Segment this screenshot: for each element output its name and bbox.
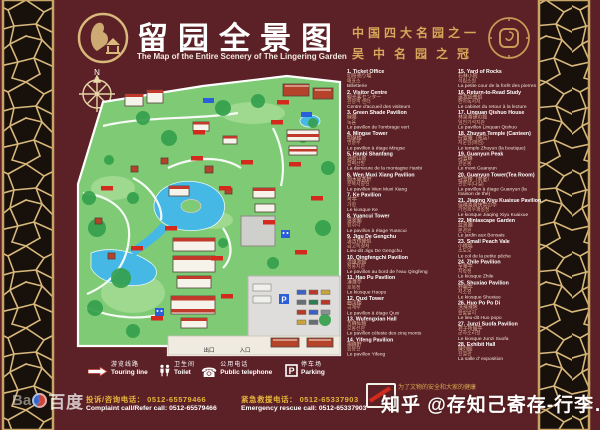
garden-map-sign: 留园全景图 The Map of the Entire Scenery of T… [0,0,600,430]
legend-entry-name-fr: Le kiosque Jiaqing Xiyu Kuaixue [458,213,544,218]
legend-entry: 9.Jigu De Gengchu汲古得綆処급고득경처Lieu-dit Jigu… [347,234,457,254]
legend-entry: 10.Qingfengchi Pavilion清風池館청풍지관Le pavill… [347,255,457,275]
legend-entry: 7.Ke Pavilion可亭가정Le kiosque Ke [347,193,457,213]
legend-entry-name-fr: Le col de la petite pêche [458,254,544,259]
legend-entry: 23.Small Peach Vale小桃塢소도오Le col de la pe… [458,239,544,259]
map-parking-mark: P [281,296,287,305]
legend-entry-name-fr: Le kiosque Haopu [347,290,457,295]
legend-entry: 27.Junzi Suofa Pavilion君子所履亭군자소리정Le kios… [458,321,544,341]
legend-entry-name-fr: Le cabinet du retour à la lecture [458,105,544,110]
map-pond-island [181,200,201,213]
baidu-paw-icon [32,393,47,408]
garden-map: N [73,68,345,368]
legend-entry-name-fr: Billetterie [347,84,457,89]
legend-entry-name-fr: Lieu-dit Jigu De Gengchu [347,249,457,254]
legend-entry: 2.Visitor Centre観光客センター관광객 센터Centre d'ac… [347,90,457,110]
legend-entry: 15.Yard of Rocks石林小院석림소원La petite cour d… [458,69,544,89]
facility-label-cn: 卫生间 [174,362,195,369]
legend-entry-name-fr: La demeure de la montagne Hanbi [347,167,457,172]
facility-touring-line: 游览线路Touring line [88,362,148,382]
facility-label-en: Toilet [174,369,195,377]
svg-text:P: P [289,366,295,376]
legend-entry-name-fr: La petite cour de la forêt des pierres [458,84,544,89]
legend-entry: 25.Shuxiao Pavilion舒嘯亭서소정Le kiosque Shux… [458,280,544,300]
compass-label: N [94,68,100,77]
legend-entry: 11.Hao Pu Pavilion濠濮亭호복정Le kiosque Haopu [347,275,457,295]
legend-entry: 5.Hanbi Shanfang涵碧山房함벽산방La demeure de la… [347,152,457,172]
legend-entry-name-en: Miniascape Garden [467,218,515,223]
legend-entry-name-fr: Le temple Zhuyun (la boutique) [458,146,544,151]
legend-entry: 6.Wen Muxi Xiang Pavilion聞木犀香軒문목서향헌Le pa… [347,172,457,192]
complaint-hotline-cn: 投诉/咨询电话： 0512-65579466 [86,395,217,404]
legend-entry-name-fr: Le mont Guanyun [458,167,544,172]
legend-entry: 12.Quxi Tower曲渓楼곡계루Le pavillon à étage Q… [347,296,457,316]
parking-icon: P [285,364,298,382]
honor-line-2: 吴中名园之冠 [352,45,480,62]
legend-column-1: 1.Ticket Office切符売り場매표소Billetterie2.Visi… [347,69,457,358]
legend-entry-name-fr: Le pavillon à étage Yuancui [347,228,457,233]
legend-entry: 19.Guanyun Peak冠雲峰관운봉Le mont Guanyun [458,152,544,172]
legend-entry: 24.Zhile Pavilion至楽亭지락정Le kiosque Zhile [458,260,544,280]
emergency-hotline: 紧急救援电话： 0512-65337903 Emergency rescue c… [241,395,366,413]
legend-entry: 1.Ticket Office切符売り場매표소Billetterie [347,69,457,89]
legend-entry-name-fr: Le pavillon à étage Quxi [347,311,457,316]
facility-label-en: Public telephone [220,369,272,377]
legend-entry-name-fr: Le pavillon au bord de l'eau Qingfeng [347,270,457,275]
legend-entry-name-fr: Le jardin aux Bonsais [458,233,544,238]
telephone-icon: ☎ [201,364,217,382]
legend-entry: 13.Wufengxian Hall五峰仙館오봉선관Le pavillon cé… [347,317,457,337]
honor-text: 中国四大名园之一 吴中名园之冠 [352,24,480,62]
legend-entry-name-fr: Le kiosque Shuxiao [458,295,544,300]
page-subtitle: The Map of the Entire Scenery of The Lin… [137,52,347,61]
legend-entry: 14.Yifeng Pavilion揖峰軒읍봉헌Le pavillon Yife… [347,337,457,357]
facility-parking: P停车场Parking [285,362,325,382]
legend-entry-name-fr: Le pavillon Yifeng [347,352,457,357]
honor-line-1: 中国四大名园之一 [352,24,480,41]
legend-entry-name-en: Shuxiao Pavilion [467,280,509,285]
legend-entry-name-fr: Le pavillon à étage Guanyun (la maison d… [458,187,544,197]
legend-entry: 18.Zhuyun Temple (Canteen)佇雲庵（売店）저운암(매점)… [458,131,544,151]
touring-line-icon [88,364,108,382]
garden-logo-icon [76,11,130,65]
legend-entry: 3.Green Shade Pavilion緑蔭녹음Le pavillon de… [347,110,457,130]
legend-column-2: 15.Yard of Rocks石林小院석림소원La petite cour d… [458,69,544,363]
emergency-hotline-en: Emergency rescue call: 0512-65337903 [241,404,366,413]
facility-label-cn: 游览线路 [111,362,148,369]
baidu-watermark: Ba 百度 [12,388,84,413]
map-entrance-label: 入口 [239,347,250,354]
facility-telephone: ☎公用电话Public telephone [201,362,272,382]
legend-entry: 17.Linquan Qishuo House林泉耆碩の館임천기석지관Le pa… [458,110,544,130]
legend-entry: 22.Miniascape Garden盆景園분경원Le jardin aux … [458,218,544,238]
zhihu-watermark: 知乎 @存知己寄存-行李… [381,390,600,417]
garden-seal-icon [486,15,532,61]
facility-label-en: Touring line [111,369,148,377]
legend-entry-name-en: Green Shade Pavilion [353,110,407,115]
toilet-icon [158,364,171,382]
legend-entry-name-fr: Le lieu-dit Huo popo [458,316,544,321]
legend-entry-name-fr: Le pavillon de l'ombrage vert [347,125,457,130]
legend-entry-name-fr: Le pavillon à étage Mingse [347,146,457,151]
legend-entry: 26.Huo Po Po Di活溌溌地활발발지Le lieu-dit Huo p… [458,301,544,321]
legend-entry-name-fr: Le kiosque Zhile [458,275,544,280]
legend-entry-name-fr: Le pavillon céleste des cinq monts [347,332,457,337]
baidu-watermark-cn: 百度 [48,388,84,413]
baidu-watermark-latin: Ba [12,392,31,409]
legend-entry: 28.Exhibit Hall陳列館진열관La salle d' exposit… [458,342,544,362]
legend-entry-name-fr: Centre d'accueil des visiteurs [347,105,457,110]
facilities-legend: 游览线路Touring line卫生间Toilet☎公用电话Public tel… [73,362,345,384]
legend-entry-name-fr: Le pavillon Wen Muxi Xiang [347,187,457,192]
complaint-hotline-en: Complaint call/Refer call: 0512-65579466 [86,404,217,413]
legend-entry: 4.Mingse Tower明瑟楼명슬루Le pavillon à étage … [347,131,457,151]
facility-label-cn: 停车场 [301,362,325,369]
legend-entry-name-fr: Le pavillon Linquan Qishuo [458,125,544,130]
legend-entry-name-en: Small Peach Vale [467,239,510,244]
complaint-hotline: 投诉/咨询电话： 0512-65579466 Complaint call/Re… [86,395,217,413]
legend-entry: 20.Guanyun Tower(Tea Room)冠雲楼（茶室）관운루(다실)… [458,172,544,197]
legend-entry-name-fr: Le kiosque Junzi Suofa [458,336,544,341]
legend-entry: 16.Return-to-Read Study還我読書処환아독서처Le cabi… [458,90,544,110]
legend-entry-name-fr: Le kiosque Ke [347,208,457,213]
legend-entry-name-en: Ke Pavilion [353,193,381,198]
facility-label-en: Parking [301,369,325,377]
facility-toilet: 卫生间Toilet [158,362,195,382]
legend-entry: 8.Yuancui Tower遠翠閣원취각Le pavillon à étage… [347,213,457,233]
legend-entry: 21.Jiaqing Xiyu Kuaixue Pavilion佳晴喜雨快雪の亭… [458,198,544,218]
legend-entry-name-fr: La salle d' exposition [458,357,544,362]
facility-label-cn: 公用电话 [220,362,272,369]
emergency-hotline-cn: 紧急救援电话： 0512-65337903 [241,395,366,404]
map-exit-label: 出口 [203,346,214,354]
